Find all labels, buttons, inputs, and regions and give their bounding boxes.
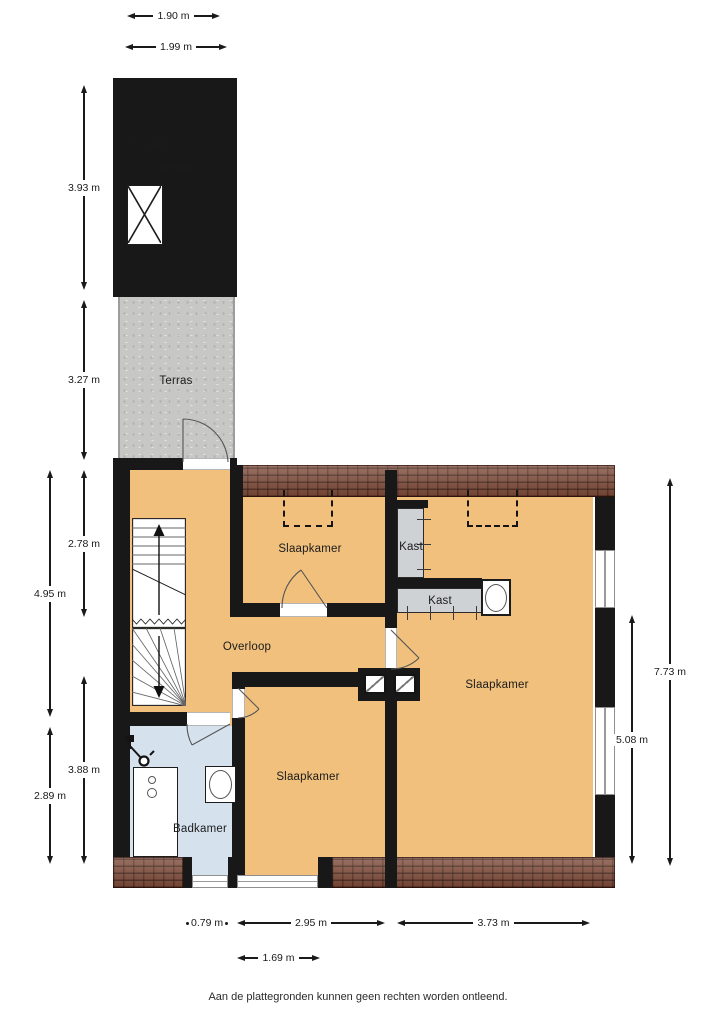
floorplan-sheet: H = 2.42m Vliering Terras <box>0 0 720 1018</box>
window-right-upper <box>595 550 615 608</box>
attic-hatch-cross-icon <box>128 186 161 243</box>
window-glass-line <box>238 881 317 883</box>
wall-center-lower <box>385 701 397 888</box>
closet-shelf-tick <box>476 606 477 620</box>
shower-icon <box>124 732 156 777</box>
kast-horizontal-label: Kast <box>428 595 452 607</box>
wall-terras-bottom-left <box>113 458 183 470</box>
door-opening-bedroom1 <box>280 603 327 617</box>
dormer-outline-bedroom1 <box>283 490 333 527</box>
closet-shelf-tick <box>453 606 454 620</box>
duct-shaft-left <box>364 674 386 694</box>
wall-right-c <box>595 795 615 857</box>
kast-vertical-label: Kast <box>399 541 423 553</box>
window-badkamer <box>192 875 228 888</box>
wall-stub-bottom-2 <box>228 857 237 888</box>
wall-center-upper <box>385 470 397 628</box>
wall-badkamer-top <box>130 712 187 726</box>
washbasin-bowl <box>485 584 507 612</box>
vliering-label: Vliering <box>157 162 194 174</box>
dimension-left-278: 2.78 m <box>77 470 91 617</box>
stairs-down-winder <box>132 628 186 711</box>
bathtub <box>133 767 178 857</box>
disclaimer-text: Aan de plattegronden kunnen geen rechten… <box>208 991 507 1003</box>
wall-stub-bottom-3 <box>318 857 332 888</box>
door-opening-bedroom3 <box>232 689 245 718</box>
overloop-label: Overloop <box>223 641 271 653</box>
wall-stub-bottom-1 <box>183 857 192 888</box>
bedroom3-label: Slaapkamer <box>276 771 339 783</box>
roof-band-bottom-left <box>113 857 183 888</box>
wall-left <box>113 465 130 857</box>
bathtub-tap <box>148 776 156 784</box>
dimension-bottom-169: 1.69 m <box>237 952 320 964</box>
wall-kast1-top <box>397 500 428 508</box>
toilet-bowl <box>209 770 232 799</box>
window-glass-line <box>193 881 227 883</box>
window-glass-line <box>604 551 606 607</box>
wall-corner-overloop <box>232 672 245 689</box>
door-opening-bedroom2 <box>385 628 397 668</box>
dimension-top-199: 1.99 m <box>125 41 227 53</box>
closet-shelf-tick <box>417 569 431 570</box>
badkamer-label: Badkamer <box>173 823 227 835</box>
dimension-top-190: 1.90 m <box>127 10 220 22</box>
dimension-left-289: 2.89 m <box>43 727 57 864</box>
dimension-left-495: 4.95 m <box>43 470 57 717</box>
stairs-up-flight <box>132 518 186 633</box>
dimension-left-327: 3.27 m <box>77 300 91 460</box>
dimension-bottom-373: 3.73 m <box>397 917 590 929</box>
washbasin <box>481 579 511 616</box>
bathtub-drain <box>147 788 157 798</box>
bedroom2-label: Slaapkamer <box>465 679 528 691</box>
dimension-right-773: 7.73 m <box>663 478 677 866</box>
dimension-bottom-295: 2.95 m <box>237 917 385 929</box>
window-bedroom3 <box>237 875 318 888</box>
wall-right-b <box>595 608 615 707</box>
toilet <box>205 766 236 803</box>
dimension-left-388: 3.88 m <box>77 676 91 864</box>
wall-kast2-top <box>397 578 482 588</box>
dimension-right-508: 5.08 m <box>625 615 639 864</box>
attic-hatch <box>127 185 163 245</box>
wall-bedroom1-bottom-a <box>230 603 280 617</box>
wall-bedroom1-left <box>230 465 243 617</box>
bedroom1-label: Slaapkamer <box>278 543 341 555</box>
roof-band-bottom-right <box>332 857 615 888</box>
closet-shelf-tick <box>407 606 408 620</box>
dimension-left-393: 3.93 m <box>77 85 91 290</box>
window-glass-line <box>604 708 606 794</box>
terras-label: Terras <box>159 375 192 387</box>
door-opening-terras <box>183 458 230 470</box>
closet-shelf-tick <box>430 606 431 620</box>
duct-shaft-right <box>394 674 416 694</box>
dimension-bottom-079: 0.79 m <box>186 917 234 929</box>
wall-right-a <box>595 497 615 550</box>
door-opening-badkamer <box>187 712 230 726</box>
vliering-height-note: H = 2.42m <box>126 139 170 149</box>
window-right-lower <box>595 707 615 795</box>
dormer-outline-bedroom2 <box>467 490 518 527</box>
closet-shelf-tick <box>417 519 431 520</box>
